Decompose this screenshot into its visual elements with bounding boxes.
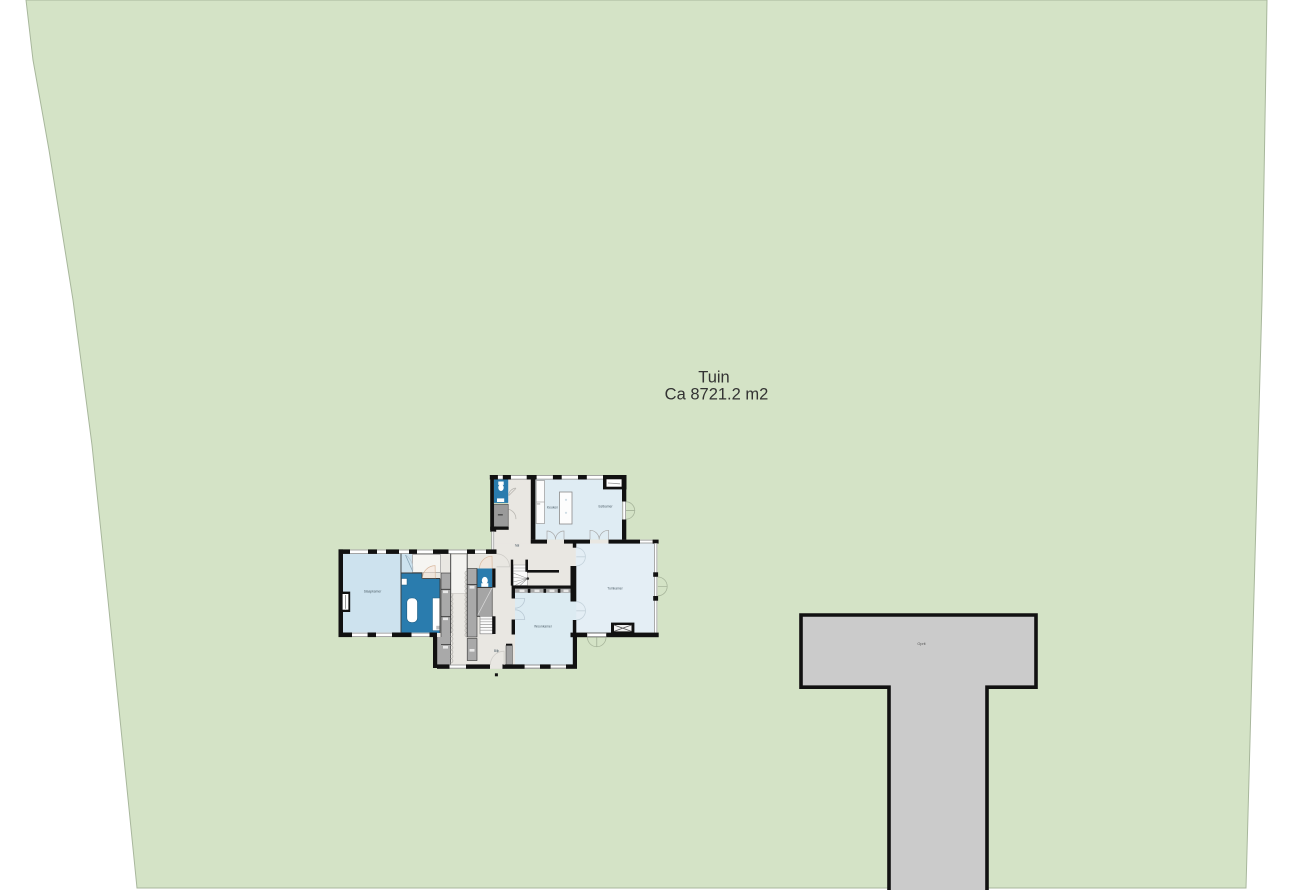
svg-text:Woonkamer: Woonkamer (534, 625, 553, 629)
svg-text:Ca 8721.2 m2: Ca 8721.2 m2 (665, 386, 769, 404)
svg-text:Tuin: Tuin (698, 369, 730, 387)
svg-text:hal: hal (515, 544, 520, 548)
svg-text:Keuken: Keuken (547, 506, 558, 510)
svg-text:Oprit: Oprit (917, 642, 926, 646)
svg-text:Eetkamer: Eetkamer (598, 505, 613, 509)
svg-text:Slaapkamer: Slaapkamer (364, 590, 382, 594)
svg-text:Tuinkamer: Tuinkamer (607, 587, 623, 591)
